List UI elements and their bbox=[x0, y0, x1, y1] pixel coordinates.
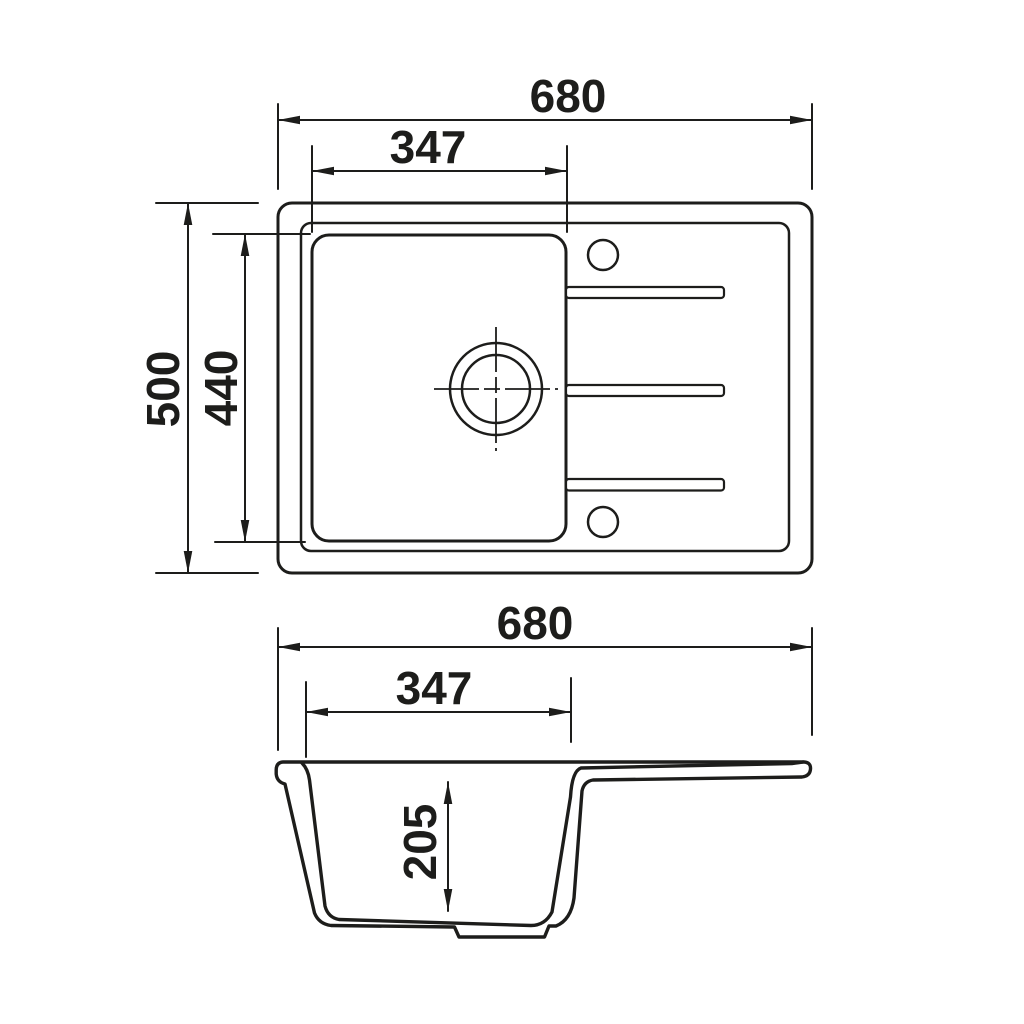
faucet-hole-top bbox=[588, 240, 618, 270]
faucet-hole-bottom bbox=[588, 507, 618, 537]
arrowhead-top bbox=[184, 203, 193, 225]
dimension-bowl-depth-top-view: 440 bbox=[195, 234, 310, 542]
arrowhead-left bbox=[312, 167, 334, 176]
top-view: 680 347 500 440 bbox=[137, 70, 812, 573]
drain bbox=[434, 327, 558, 451]
section-inner-profile bbox=[302, 762, 803, 926]
drainboard-groove bbox=[566, 385, 724, 396]
dimension-label: 205 bbox=[394, 804, 446, 881]
drainboard-groove bbox=[566, 479, 724, 491]
arrowhead-bottom bbox=[444, 889, 453, 911]
dimension-label: 347 bbox=[390, 121, 467, 173]
dimension-bowl-depth-section: 205 bbox=[394, 782, 452, 911]
dimension-label: 440 bbox=[195, 350, 247, 427]
arrowhead-top bbox=[241, 234, 250, 256]
section-outer-profile bbox=[276, 762, 810, 937]
dimension-bowl-width-section: 347 bbox=[306, 662, 571, 757]
dimension-label: 347 bbox=[396, 662, 473, 714]
arrowhead-bottom bbox=[184, 551, 193, 573]
dimension-label: 500 bbox=[137, 351, 189, 428]
arrowhead-left bbox=[278, 116, 300, 125]
arrowhead-right bbox=[549, 708, 571, 717]
section-view: 680 347 205 bbox=[276, 597, 812, 937]
dimension-label: 680 bbox=[530, 70, 607, 122]
sink-outer-rim-outline bbox=[278, 203, 812, 573]
sink-technical-drawing: 680 347 500 440 bbox=[0, 0, 1024, 1024]
dimension-overall-width-section: 680 bbox=[278, 597, 812, 750]
arrowhead-left bbox=[278, 643, 300, 652]
arrowhead-left bbox=[306, 708, 328, 717]
drawing-canvas: 680 347 500 440 bbox=[0, 0, 1024, 1024]
arrowhead-right bbox=[790, 643, 812, 652]
bowl-outline bbox=[312, 235, 566, 541]
arrowhead-top bbox=[444, 782, 453, 804]
arrowhead-right bbox=[790, 116, 812, 125]
arrowhead-right bbox=[545, 167, 567, 176]
dimension-bowl-width-top: 347 bbox=[312, 121, 567, 232]
arrowhead-bottom bbox=[241, 520, 250, 542]
drainboard-groove bbox=[566, 287, 724, 298]
dimension-label: 680 bbox=[497, 597, 574, 649]
